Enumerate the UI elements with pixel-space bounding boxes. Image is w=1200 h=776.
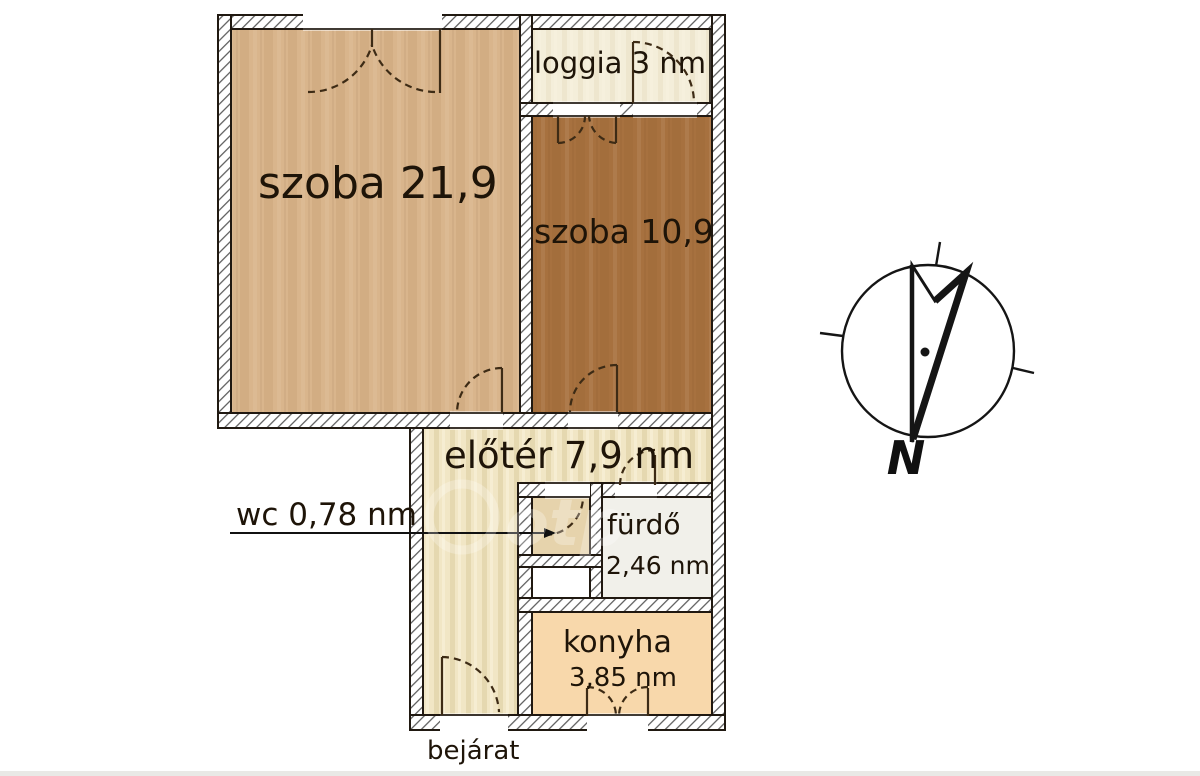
opening-window-szoba-large	[303, 14, 442, 31]
opening-window-loggia	[553, 102, 620, 118]
opening-door-bejarat	[440, 714, 508, 732]
wall-left	[218, 15, 231, 428]
label-furdo-area: 2,46 nm	[606, 551, 710, 580]
floorplan-canvas: otp szoba 21,9 loggia 3 nm szoba 10,9 el…	[0, 0, 1200, 776]
label-loggia: loggia 3 nm	[534, 46, 706, 80]
label-wc: wc 0,78 nm	[236, 497, 417, 533]
opening-door-szoba-small	[568, 412, 618, 430]
opening-door-loggia	[633, 102, 697, 118]
compass-center-dot	[921, 348, 930, 357]
opening-door-szoba-large	[450, 412, 503, 430]
compass-north-label: N	[887, 431, 926, 485]
compass-tick-top	[936, 242, 940, 266]
label-szoba-large: szoba 21,9	[258, 158, 498, 209]
grain-szoba-small	[532, 116, 712, 413]
wall-top	[218, 15, 725, 29]
label-bejarat: bejárat	[427, 736, 519, 766]
wall-konyha-top	[518, 598, 712, 612]
floorplan-page: otp szoba 21,9 loggia 3 nm szoba 10,9 el…	[0, 0, 1200, 776]
opening-window-konyha	[587, 714, 648, 732]
label-furdo: fürdő	[607, 508, 681, 541]
label-szoba-small: szoba 10,9	[534, 212, 714, 251]
label-konyha: konyha	[563, 625, 672, 660]
bottom-edge-strip	[0, 771, 1200, 776]
compass-tick-left	[820, 333, 843, 336]
label-konyha-area: 3,85 nm	[569, 663, 677, 693]
compass: N	[820, 242, 1034, 485]
wall-right	[712, 15, 725, 730]
compass-tick-right	[1013, 368, 1034, 373]
wall-corridor-left	[410, 428, 423, 730]
wall-between-rooms	[520, 15, 532, 428]
label-eloter: előtér 7,9 nm	[444, 434, 694, 477]
grain-szoba-large	[231, 29, 520, 413]
